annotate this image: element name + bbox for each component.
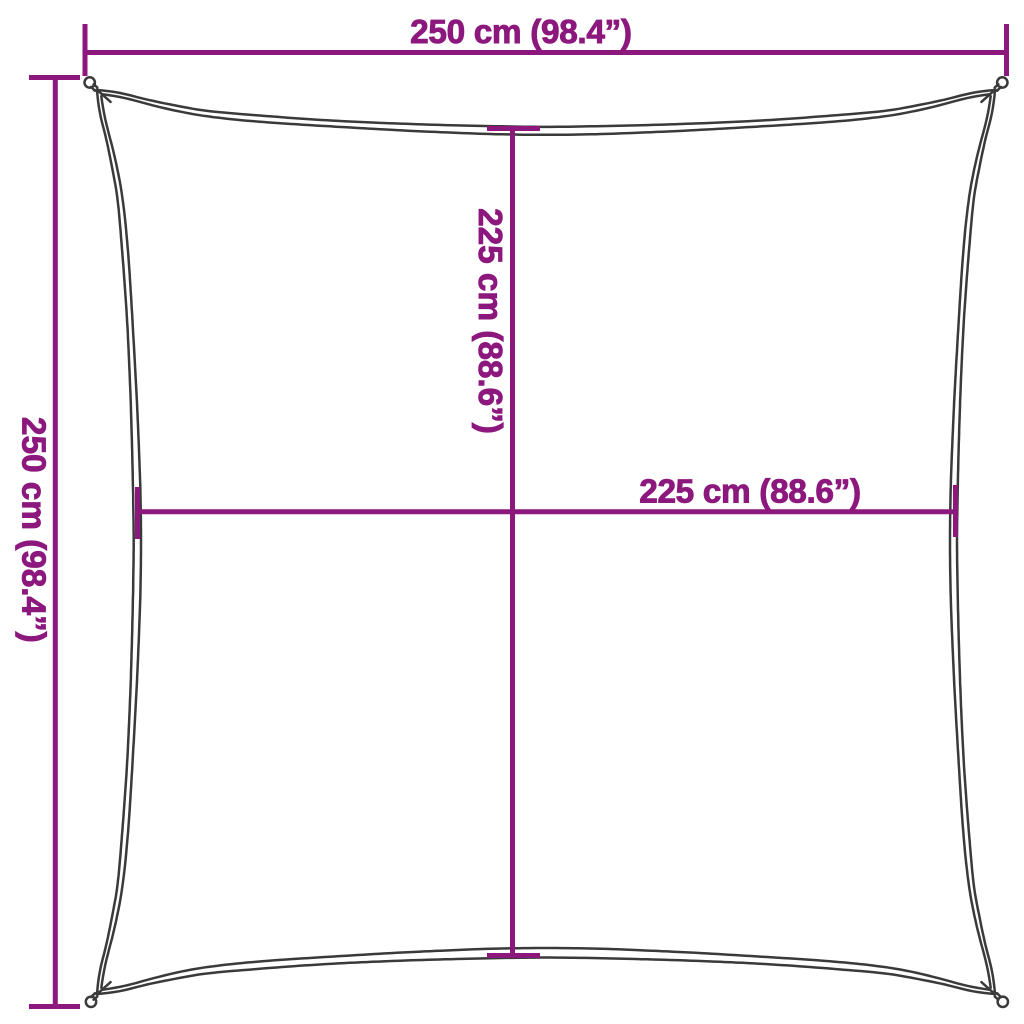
svg-text:250 cm (98.4”): 250 cm (98.4”) <box>15 417 52 643</box>
svg-text:250 cm (98.4”): 250 cm (98.4”) <box>410 14 632 51</box>
svg-text:225 cm (88.6”): 225 cm (88.6”) <box>471 208 508 434</box>
svg-text:225 cm (88.6”): 225 cm (88.6”) <box>639 474 861 511</box>
